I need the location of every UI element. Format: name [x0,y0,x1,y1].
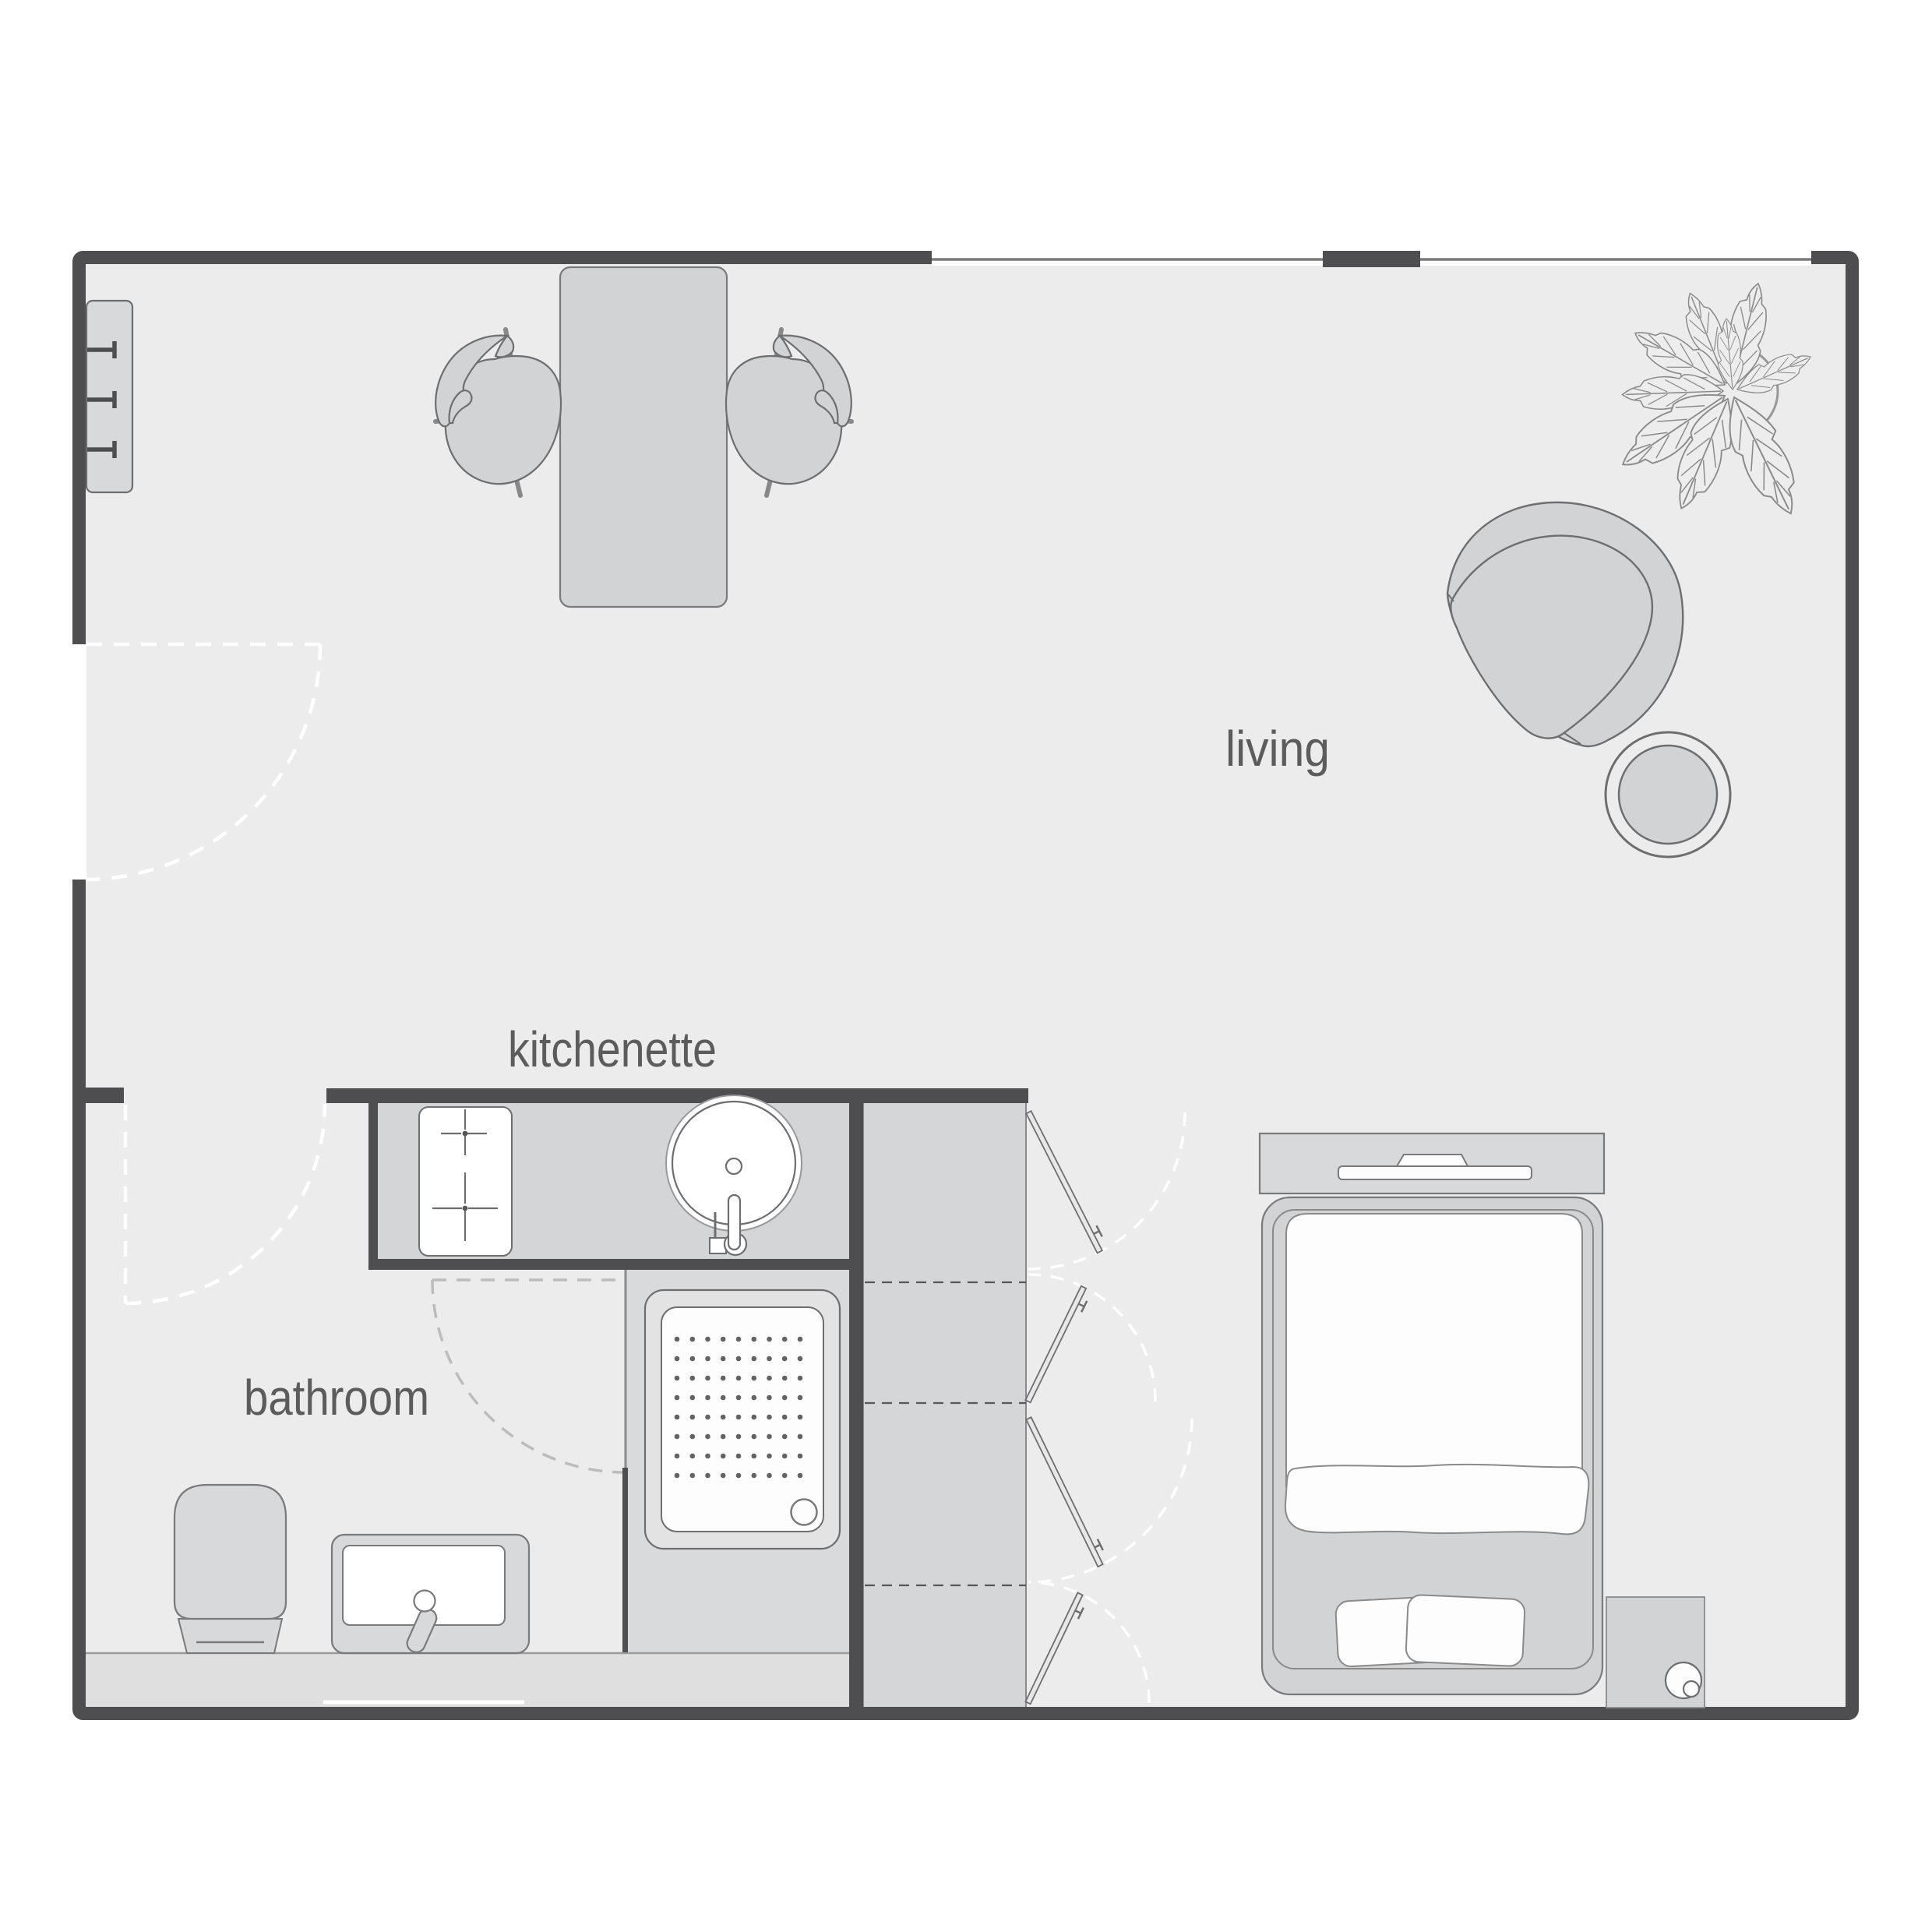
svg-text:living: living [1225,721,1330,777]
svg-text:bathroom: bathroom [244,1370,429,1426]
svg-text:kitchenette: kitchenette [508,1021,717,1077]
